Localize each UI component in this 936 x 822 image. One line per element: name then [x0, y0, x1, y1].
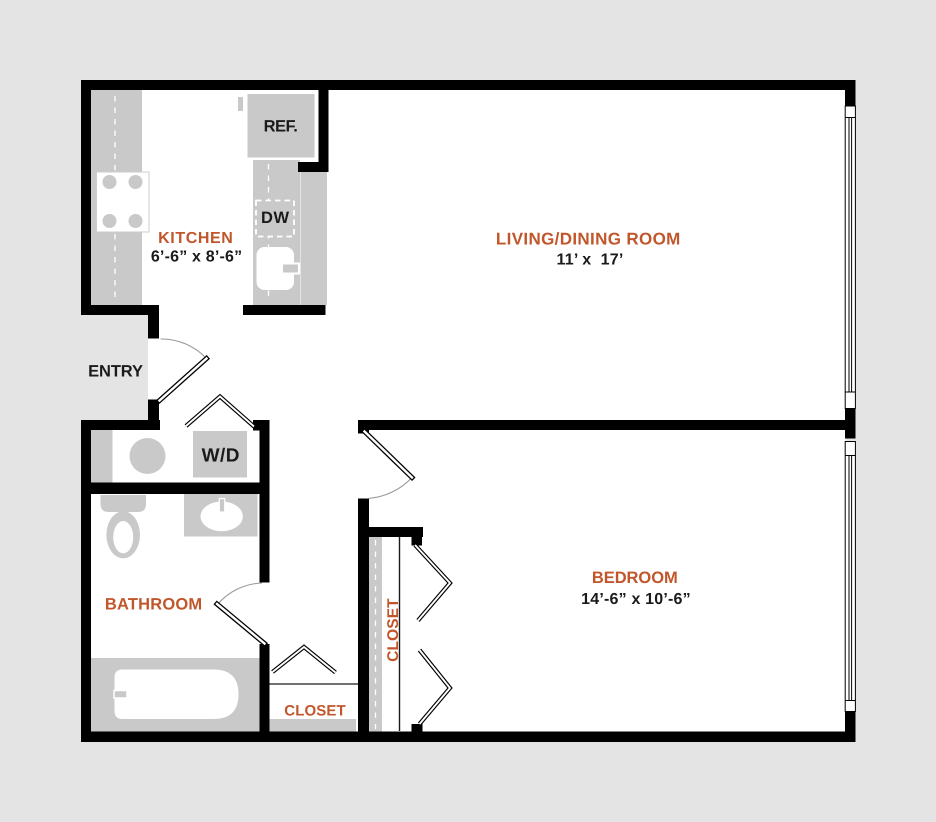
svg-text:BEDROOM: BEDROOM — [592, 569, 678, 587]
svg-text:BATHROOM: BATHROOM — [105, 595, 203, 613]
svg-text:KITCHEN: KITCHEN — [158, 230, 233, 247]
svg-text:LIVING/DINING ROOM: LIVING/DINING ROOM — [496, 230, 681, 249]
svg-text:11’ x 17’: 11’ x 17’ — [557, 252, 624, 269]
svg-text:REF.: REF. — [264, 118, 298, 136]
svg-text:14’-6” x 10’-6”: 14’-6” x 10’-6” — [581, 591, 691, 608]
svg-text:CLOSET: CLOSET — [385, 598, 402, 662]
svg-text:W/D: W/D — [202, 446, 240, 467]
svg-text:ENTRY: ENTRY — [88, 362, 143, 380]
svg-text:6’-6” x 8’-6”: 6’-6” x 8’-6” — [151, 249, 243, 266]
svg-text:CLOSET: CLOSET — [284, 703, 345, 720]
svg-text:DW: DW — [261, 209, 290, 227]
